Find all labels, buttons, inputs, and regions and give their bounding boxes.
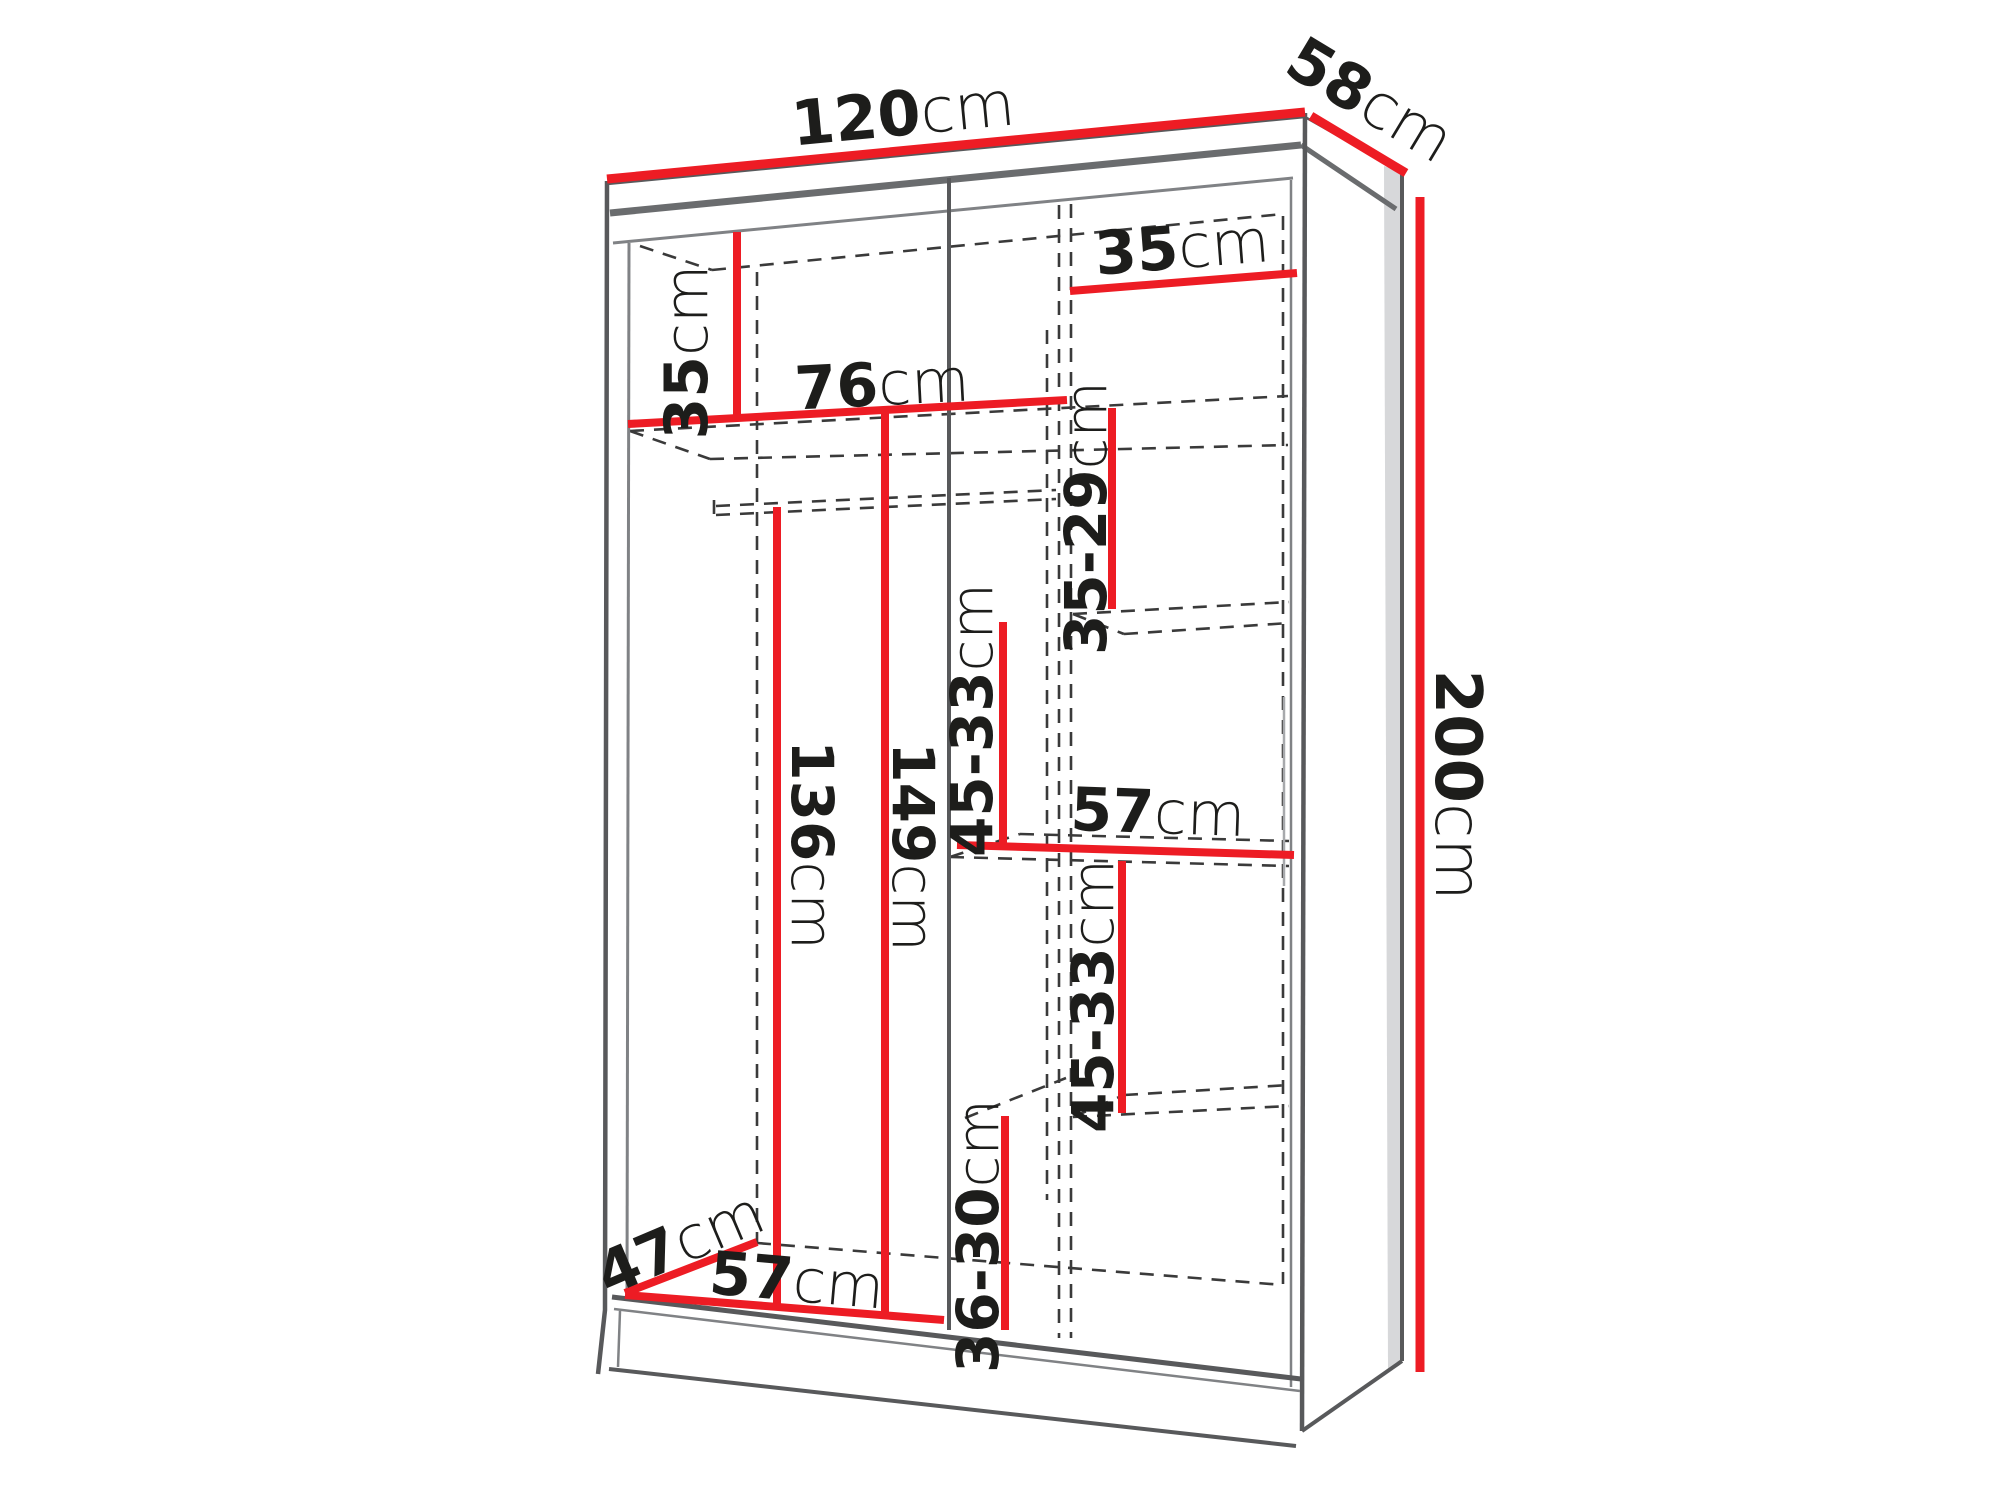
wardrobe-dimension-diagram: 120cm 58cm 200cm 35cm 35cm 76cm 35-29cm …: [0, 0, 2000, 1500]
dimension-lines: [607, 112, 1420, 1372]
left-outer-edge: [598, 181, 607, 1374]
plinth-left-edge: [618, 1311, 620, 1367]
label-gap-35-29: 35-29cm: [1052, 381, 1120, 655]
right-outer-edge: [1302, 113, 1305, 1431]
label-left-height-149: 149cm: [879, 742, 947, 951]
label-height-200: 200cm: [1420, 669, 1494, 900]
label-right-col-35: 35cm: [1092, 206, 1272, 290]
label-left-width-76: 76cm: [793, 345, 971, 424]
shelf4-back-edge: [1124, 1085, 1289, 1095]
diagram-canvas: 120cm 58cm 200cm 35cm 35cm 76cm 35-29cm …: [0, 0, 2000, 1500]
label-gap-45-33-b: 45-33cm: [1059, 859, 1127, 1133]
shelf2-back-edge: [1124, 623, 1289, 634]
left-inner-edge: [627, 243, 629, 1297]
top-shelf-back-edge: [710, 445, 1288, 459]
label-gap-36-30: 36-30cm: [944, 1099, 1012, 1373]
plinth-bottom-edge: [609, 1369, 1296, 1446]
label-gap-45-33-a: 45-33cm: [938, 583, 1006, 857]
label-top-section-35: 35cm: [652, 265, 722, 440]
label-hanging-136: 136cm: [778, 740, 846, 949]
label-right-half-57: 57cm: [1069, 775, 1246, 851]
